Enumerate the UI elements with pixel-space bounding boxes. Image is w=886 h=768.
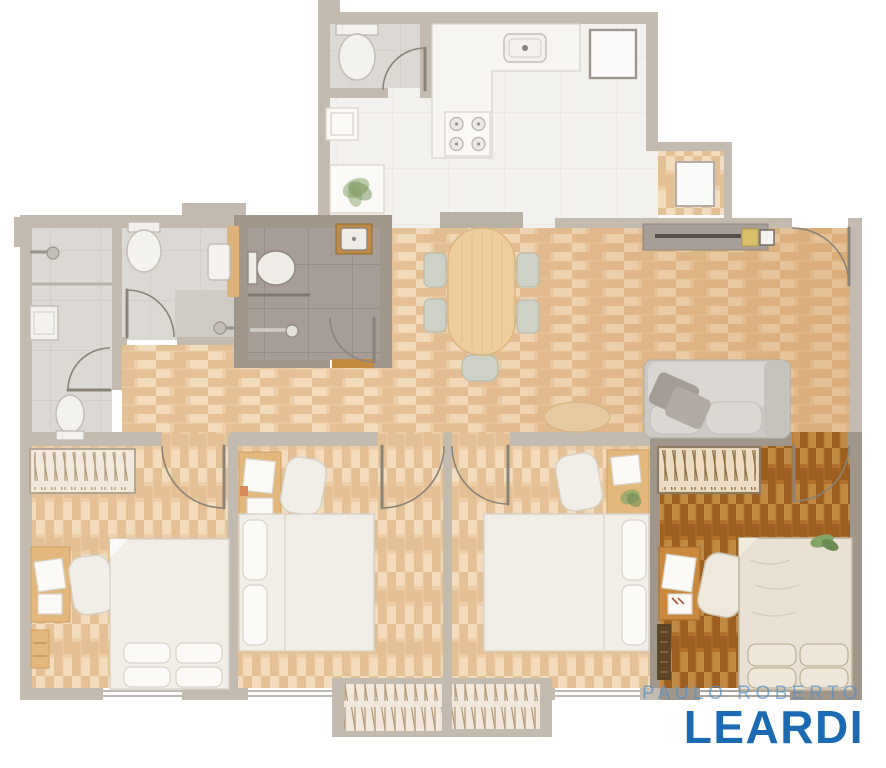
pillow	[800, 668, 848, 688]
desk-item	[240, 486, 248, 496]
console-frame	[760, 230, 774, 245]
pillow	[748, 668, 796, 688]
dining-chair	[424, 299, 446, 332]
pillow	[243, 585, 267, 645]
refrigerator	[590, 30, 636, 78]
bed	[239, 514, 374, 651]
toilet-tank	[248, 252, 257, 284]
floor-plan-svg	[0, 0, 886, 768]
desk-mirror	[662, 554, 696, 592]
top-block-north-wall	[318, 12, 658, 24]
shower-head-icon	[47, 247, 59, 259]
pillow	[176, 667, 222, 687]
desk-chair	[67, 553, 116, 616]
toilet	[127, 230, 161, 272]
pillow	[243, 520, 267, 580]
tv-screen	[655, 234, 741, 238]
closet-wardrobe-right	[450, 684, 540, 729]
pillow	[124, 643, 170, 663]
stove	[445, 112, 490, 156]
dining-chair	[517, 300, 539, 333]
shower-head-icon	[214, 322, 226, 334]
counter-nook	[676, 162, 714, 206]
pillow	[622, 520, 646, 580]
tv-console	[643, 224, 774, 250]
console-decor	[742, 229, 758, 246]
east-outer-wall	[850, 218, 862, 436]
window-bedroom-3	[555, 688, 640, 700]
pillow	[748, 644, 796, 666]
closet-bump-out	[332, 678, 552, 737]
window-bedroom-2	[248, 688, 332, 700]
dining-chair	[424, 253, 446, 287]
kitchen-faucet	[522, 45, 528, 51]
middle-bathroom-shower-floor	[175, 290, 234, 340]
nook-counter-box	[676, 162, 714, 206]
bed	[484, 514, 649, 651]
nightstand	[31, 630, 49, 668]
floor-plan-image: PAULO ROBERTO LEARDI	[0, 0, 886, 768]
sofa	[644, 360, 790, 438]
pillow	[124, 667, 170, 687]
west-wing-north-wall	[20, 215, 234, 228]
sink	[208, 244, 230, 280]
dining-chair	[462, 355, 498, 381]
shower-head-icon	[286, 325, 298, 337]
coffee-ottoman	[544, 402, 610, 432]
wc-toilet	[339, 34, 375, 80]
toilet	[56, 395, 84, 433]
pillow	[622, 585, 646, 645]
toilet-tank	[56, 431, 84, 440]
bathroom-door-threshold	[332, 359, 374, 368]
closet-wardrobe-left	[344, 684, 442, 731]
pillow	[800, 644, 848, 666]
bed	[739, 538, 852, 690]
dining-chair	[517, 253, 539, 287]
bed	[110, 539, 229, 689]
window-bedroom-1	[103, 688, 182, 700]
pillow	[176, 643, 222, 663]
kitchen-island-counter	[440, 212, 523, 228]
toilet	[257, 251, 295, 285]
